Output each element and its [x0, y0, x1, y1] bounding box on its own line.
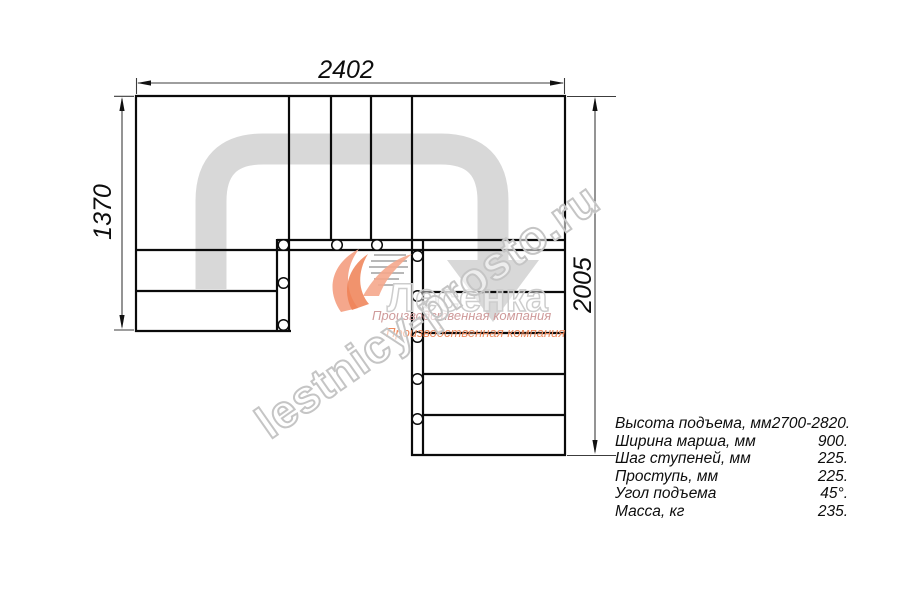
spec-label: Ширина марша, мм: [615, 433, 756, 451]
arrow-icon: [550, 80, 564, 85]
spec-label: Проступь, мм: [615, 468, 718, 486]
spec-row: Угол подъема 45°.: [615, 485, 848, 503]
spec-row: Ширина марша, мм 900.: [615, 433, 848, 451]
dimension-width-label: 2402: [317, 56, 374, 84]
arrow-icon: [592, 97, 597, 111]
spec-label: Шаг ступеней, мм: [615, 450, 751, 468]
spec-label: Высота подъема, мм: [615, 415, 772, 433]
watermark-site-text: lestnicy-prosto.ru: [246, 172, 609, 448]
screw-hole: [278, 320, 289, 331]
spec-table: Высота подъема, мм 2700-2820. Ширина мар…: [615, 415, 848, 520]
spec-value: 225.: [818, 468, 848, 486]
staircase-plan-canvas: 2402 1370 2005 Лесенка Производственная …: [0, 0, 900, 600]
dimension-height-left-label: 1370: [89, 184, 117, 240]
arrow-icon: [119, 97, 124, 111]
spec-value: 45°.: [820, 485, 848, 503]
arrow-icon: [137, 80, 151, 85]
arrow-icon: [592, 440, 597, 454]
spec-value: 900.: [818, 433, 848, 451]
spec-row: Проступь, мм 225.: [615, 468, 848, 486]
screw-hole: [412, 251, 423, 262]
dimension-height-right-label: 2005: [569, 257, 597, 314]
spec-value: 235.: [818, 503, 848, 521]
screw-hole: [372, 240, 383, 251]
spec-value: 225.: [818, 450, 848, 468]
spec-label: Угол подъема: [615, 485, 716, 503]
arrow-icon: [119, 315, 124, 329]
screw-hole: [332, 240, 343, 251]
spec-label: Масса, кг: [615, 503, 684, 521]
screw-hole: [412, 414, 423, 425]
spec-row: Шаг ступеней, мм 225.: [615, 450, 848, 468]
screw-hole: [278, 240, 289, 251]
screw-hole: [278, 278, 289, 289]
spec-row: Высота подъема, мм 2700-2820.: [615, 415, 848, 433]
spec-value: 2700-2820.: [772, 415, 850, 433]
screw-hole: [412, 374, 423, 385]
spec-row: Масса, кг 235.: [615, 503, 848, 521]
